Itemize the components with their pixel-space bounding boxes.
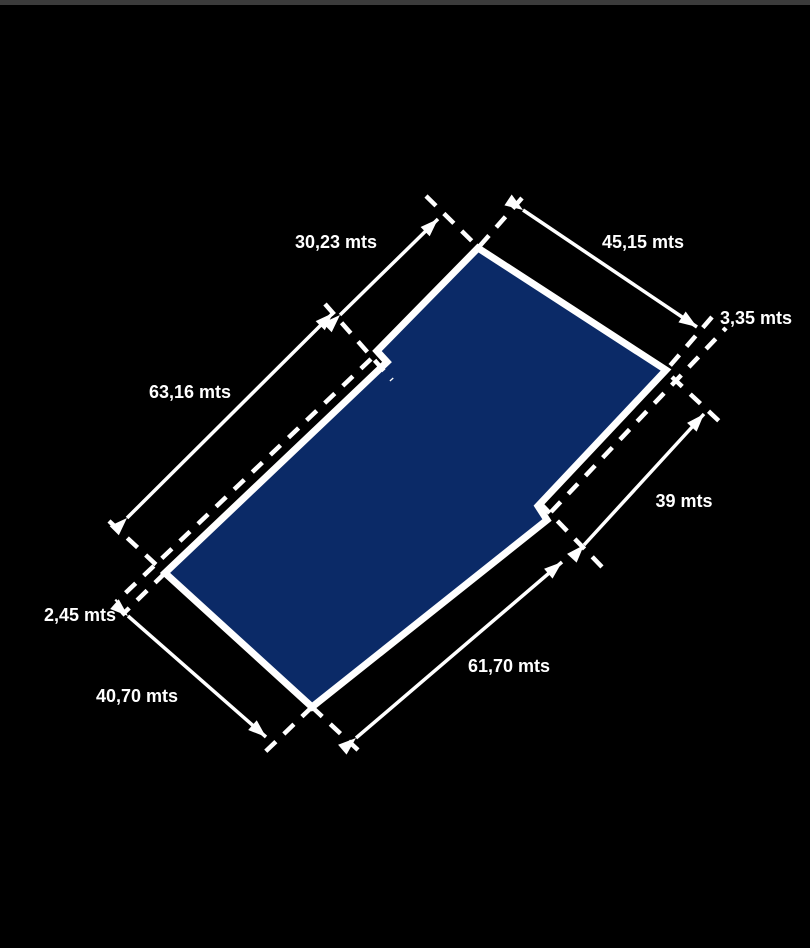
measurement-label-bottom-left: 40,70 mts [96,686,178,706]
measurement-label-left: 63,16 mts [149,382,231,402]
measurement-label-bottom-right: 61,70 mts [468,656,550,676]
measurement-label-top-left: 30,23 mts [295,232,377,252]
top-window-bar [0,0,810,5]
measurement-label-top-right: 45,15 mts [602,232,684,252]
diagram-canvas: 30,23 mts 45,15 mts 3,35 mts 63,16 mts 3… [0,0,810,948]
measurement-label-bottom-left-offset: 2,45 mts [44,605,116,625]
measurement-label-right-offset: 3,35 mts [720,308,792,328]
measurement-label-right: 39 mts [655,491,712,511]
survey-diagram: 30,23 mts 45,15 mts 3,35 mts 63,16 mts 3… [0,0,810,948]
